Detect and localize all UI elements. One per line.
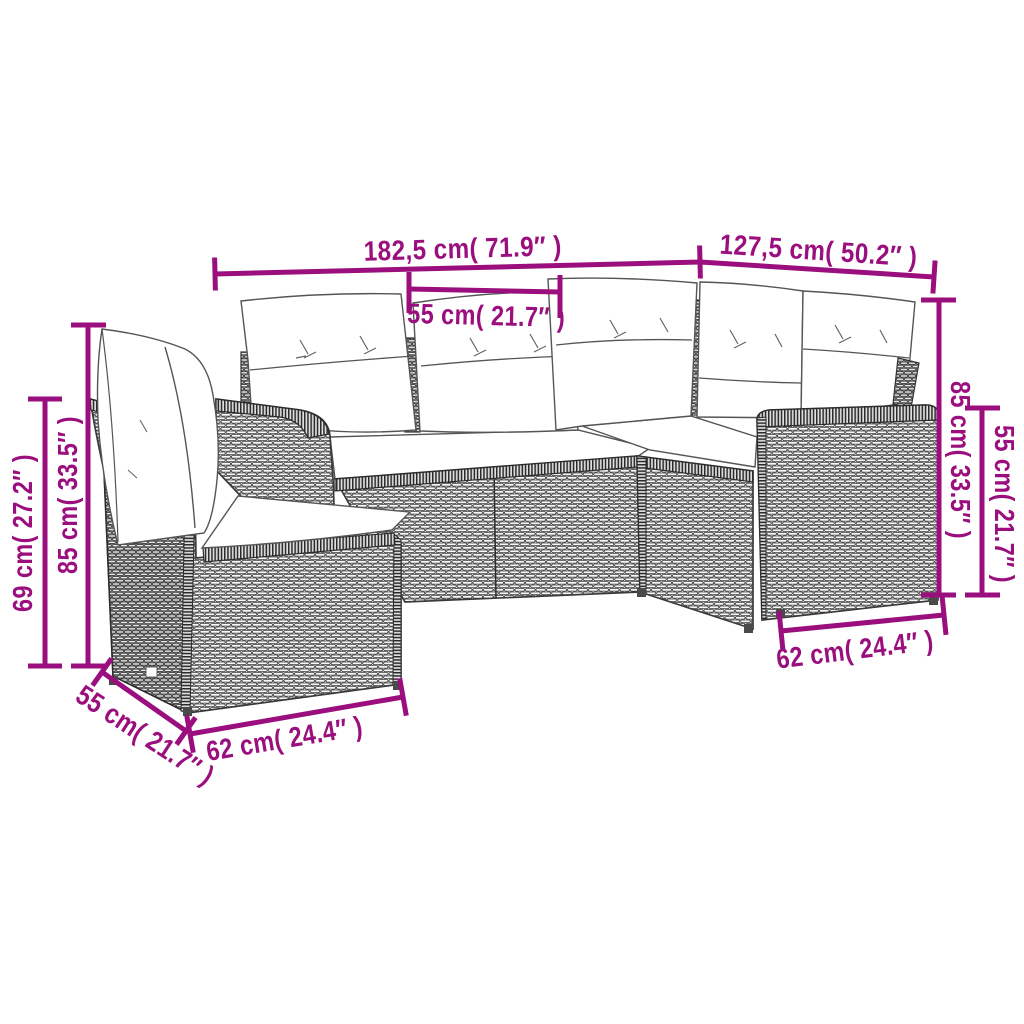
svg-text:85 cm( 33.5″ ): 85 cm( 33.5″ ) bbox=[52, 416, 83, 574]
svg-text:55 cm( 21.7″ ): 55 cm( 21.7″ ) bbox=[407, 298, 566, 333]
svg-text:69 cm( 27.2″ ): 69 cm( 27.2″ ) bbox=[7, 454, 38, 612]
svg-text:55 cm( 21.7″ ): 55 cm( 21.7″ ) bbox=[989, 425, 1020, 583]
svg-text:182,5 cm( 71.9″ ): 182,5 cm( 71.9″ ) bbox=[363, 230, 562, 267]
svg-text:85 cm( 33.5″ ): 85 cm( 33.5″ ) bbox=[945, 381, 976, 539]
